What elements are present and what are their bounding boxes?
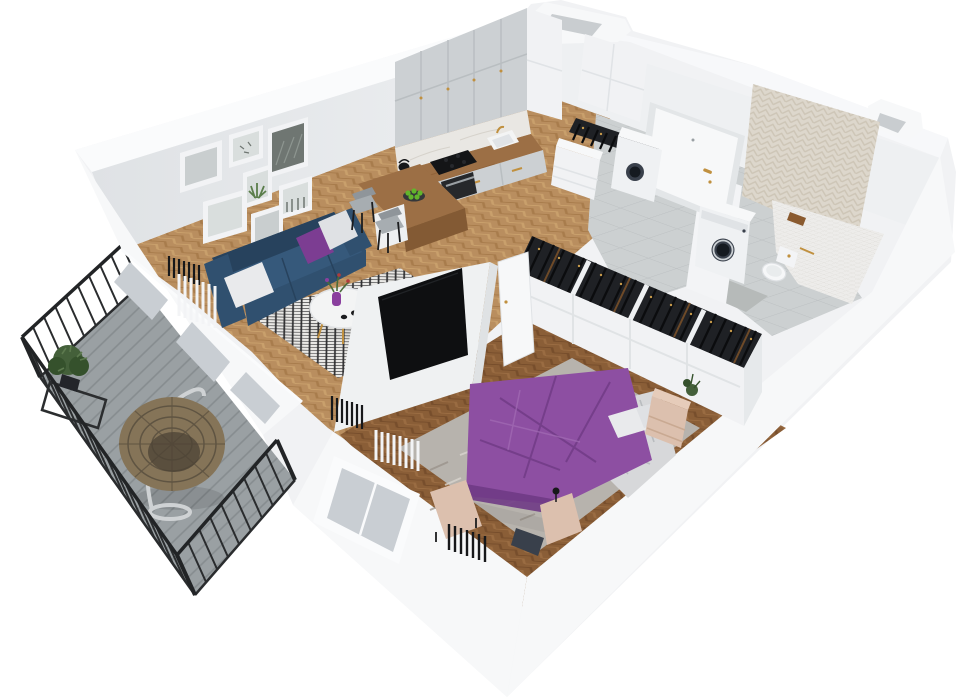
- green-apple-5: [414, 194, 419, 199]
- dryer-door-inner: [630, 167, 641, 178]
- floorplan-render: [0, 0, 957, 700]
- hanger-hook-1: [538, 248, 540, 250]
- bedroom-plant-2: [683, 379, 691, 387]
- hanger-hook-2: [558, 257, 560, 259]
- cabinet-knob-3: [473, 79, 476, 82]
- burner-1: [444, 158, 448, 162]
- washer-button: [742, 229, 745, 232]
- wardrobe-open-door-leaf: [498, 252, 534, 366]
- black-cup-2: [341, 315, 347, 319]
- hanger-hook-11: [750, 338, 752, 340]
- burner-3: [450, 164, 454, 168]
- cabinet-knob-4: [500, 70, 503, 73]
- washer-door-glass: [717, 244, 730, 257]
- black-table-lamp: [553, 488, 560, 495]
- green-apple-4: [408, 194, 413, 199]
- purple-vase: [332, 292, 341, 306]
- flower-bud-1: [325, 278, 329, 282]
- hanger-hook-8: [690, 313, 692, 315]
- cabinet-knob-2: [447, 88, 450, 91]
- hanger-hook-9: [710, 321, 712, 323]
- flower-bud-2: [346, 279, 350, 283]
- hanger-hook-5: [620, 283, 622, 285]
- open-door-handle: [504, 300, 507, 303]
- hanger-hook-10: [730, 330, 732, 332]
- burner-4: [462, 160, 466, 164]
- entrance-door-peephole: [692, 139, 695, 142]
- hanger-hook-7: [670, 304, 672, 306]
- shoe-gold-1: [582, 127, 584, 129]
- toilet-flush-button: [787, 254, 790, 257]
- hanger-hook-3: [578, 265, 580, 267]
- shoe-gold-2: [600, 133, 602, 135]
- green-apple-2: [411, 188, 416, 193]
- egg-chair-seat-hollow: [148, 432, 200, 472]
- tall-fridge-cabinet: [527, 8, 562, 120]
- floorplan-svg: [0, 0, 957, 700]
- entrance-door-lock: [708, 180, 711, 183]
- burner-2: [456, 154, 460, 158]
- hanger-hook-6: [650, 296, 652, 298]
- hanger-hook-4: [600, 274, 602, 276]
- balcony-plant-cluster2: [48, 357, 66, 375]
- cabinet-knob-1: [420, 97, 423, 100]
- flower-bud-3: [337, 273, 341, 277]
